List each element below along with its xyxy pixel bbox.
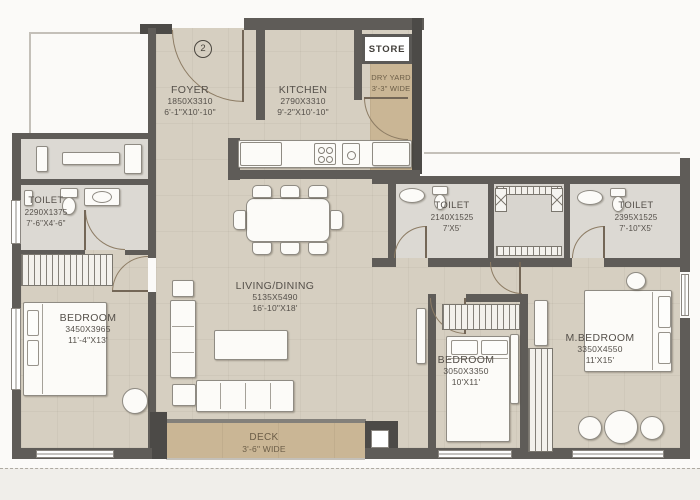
sofa-single-seat xyxy=(172,384,196,406)
bedroom-mid-label: BEDROOM 3050X3350 10'X11' xyxy=(438,354,495,388)
kitchen-label: KITCHEN 2790X3310 9'-2"X10'-10" xyxy=(277,84,329,118)
window xyxy=(36,450,114,458)
dining-chair xyxy=(308,185,328,198)
burner-icon xyxy=(326,156,333,163)
dining-chair xyxy=(308,242,328,255)
wall xyxy=(125,250,152,255)
side-table-round xyxy=(122,388,148,414)
pillow xyxy=(481,340,508,355)
wardrobe xyxy=(21,254,113,286)
dining-chair xyxy=(233,210,246,230)
wall xyxy=(412,18,422,174)
door-leaf xyxy=(364,97,408,99)
wardrobe xyxy=(528,348,553,452)
sink-drain-icon xyxy=(347,151,356,160)
stove-icon xyxy=(314,143,336,165)
burner-icon xyxy=(318,156,325,163)
living-dining-label: LIVING/DINING 5135X5490 16'-10"X18' xyxy=(236,280,315,314)
bed-seam xyxy=(652,292,653,370)
store-box: STORE xyxy=(362,34,412,64)
window xyxy=(572,450,664,458)
door-leaf xyxy=(242,30,244,102)
wall xyxy=(680,318,690,459)
wall xyxy=(428,258,488,267)
window xyxy=(11,200,21,244)
bedside-ledge xyxy=(510,334,519,404)
deck-label: DECK 3'-6" WIDE xyxy=(242,432,285,455)
pouf xyxy=(578,416,602,440)
deck-edge-line xyxy=(166,458,365,460)
utility-sink-icon xyxy=(124,144,142,174)
bedroom-left-label: BEDROOM 3450X3965 11'-4"X13' xyxy=(60,312,117,346)
bed-seam xyxy=(42,304,43,394)
wall xyxy=(148,136,156,258)
dry-yard-label: DRY YARD 3'-3" WIDE xyxy=(371,72,410,94)
dining-chair xyxy=(252,242,272,255)
foyer-label: FOYER 1850X3310 6'-1"X10'-10" xyxy=(164,84,216,118)
pillow xyxy=(27,310,39,336)
wardrobe xyxy=(442,304,520,330)
washbasin-icon xyxy=(92,191,112,203)
pouf xyxy=(640,416,664,440)
shaft-grill xyxy=(496,246,562,256)
master-bedroom-label: M.BEDROOM 3350X4550 11'X15' xyxy=(565,332,634,366)
washbasin-icon xyxy=(577,190,603,205)
window xyxy=(438,450,512,458)
side-table-round xyxy=(626,272,646,290)
dining-chair xyxy=(280,242,300,255)
toilet-mid-label: TOILET 2140X1525 7'X5' xyxy=(431,200,474,234)
sofa-seam xyxy=(245,383,246,409)
wall xyxy=(520,294,528,452)
pouf xyxy=(604,410,638,444)
dresser xyxy=(534,300,548,346)
utility-counter xyxy=(62,152,120,165)
pillow xyxy=(658,296,671,328)
wall xyxy=(466,294,524,302)
refrigerator xyxy=(240,142,282,166)
burner-icon xyxy=(318,147,325,154)
plot-boundary-dashed-line xyxy=(0,468,700,500)
sofa-seam xyxy=(270,383,271,409)
wall xyxy=(564,258,572,267)
wall xyxy=(256,28,265,120)
wall xyxy=(12,133,152,139)
void-edge-line xyxy=(29,32,31,136)
wall xyxy=(488,184,494,264)
shaft-duct xyxy=(551,188,563,212)
floor-plan: STORE xyxy=(0,0,700,500)
tv-unit xyxy=(416,308,426,364)
door-leaf xyxy=(112,290,148,292)
store-label: STORE xyxy=(369,44,406,55)
sofa-seam xyxy=(220,383,221,409)
deck-sill xyxy=(166,419,366,423)
utility-unit xyxy=(36,146,48,172)
sofa-seam xyxy=(172,352,194,353)
wall xyxy=(604,258,680,267)
wall xyxy=(372,258,396,267)
window xyxy=(681,274,689,316)
window xyxy=(11,308,21,390)
door-leaf xyxy=(519,262,521,294)
door-leaf xyxy=(425,226,427,258)
wall xyxy=(244,18,424,30)
entry-number-badge: 2 xyxy=(194,40,212,58)
washbasin-icon xyxy=(399,188,425,203)
toilet-master-label: TOILET 2395X1525 7'-10"X5' xyxy=(615,200,658,234)
washing-machine xyxy=(372,142,410,166)
coffee-table xyxy=(214,330,288,360)
dining-chair xyxy=(280,185,300,198)
toilet-left-label: TOILET 2290X1375 7'-6"X4'-6" xyxy=(25,195,68,229)
chajja-line xyxy=(424,152,680,154)
sofa-three-seater xyxy=(170,300,196,378)
shaft-duct xyxy=(495,188,507,212)
dining-chair xyxy=(330,210,343,230)
wall xyxy=(148,28,156,136)
wall xyxy=(150,412,167,459)
wall xyxy=(564,184,570,264)
wall xyxy=(680,158,690,272)
sofa-seam xyxy=(172,326,194,327)
duct xyxy=(371,430,389,448)
pillow xyxy=(27,340,39,366)
door-leaf xyxy=(603,226,605,258)
void-edge-line xyxy=(29,32,153,34)
dining-chair xyxy=(252,185,272,198)
sofa-single-seat xyxy=(172,280,194,297)
burner-icon xyxy=(326,147,333,154)
wall xyxy=(354,24,362,100)
pillow xyxy=(658,332,671,364)
wall xyxy=(12,179,152,185)
wall xyxy=(428,294,436,452)
dining-table xyxy=(246,198,330,242)
wall xyxy=(372,176,683,184)
door-leaf xyxy=(84,210,86,250)
pillow xyxy=(451,340,478,355)
wall xyxy=(140,24,172,34)
